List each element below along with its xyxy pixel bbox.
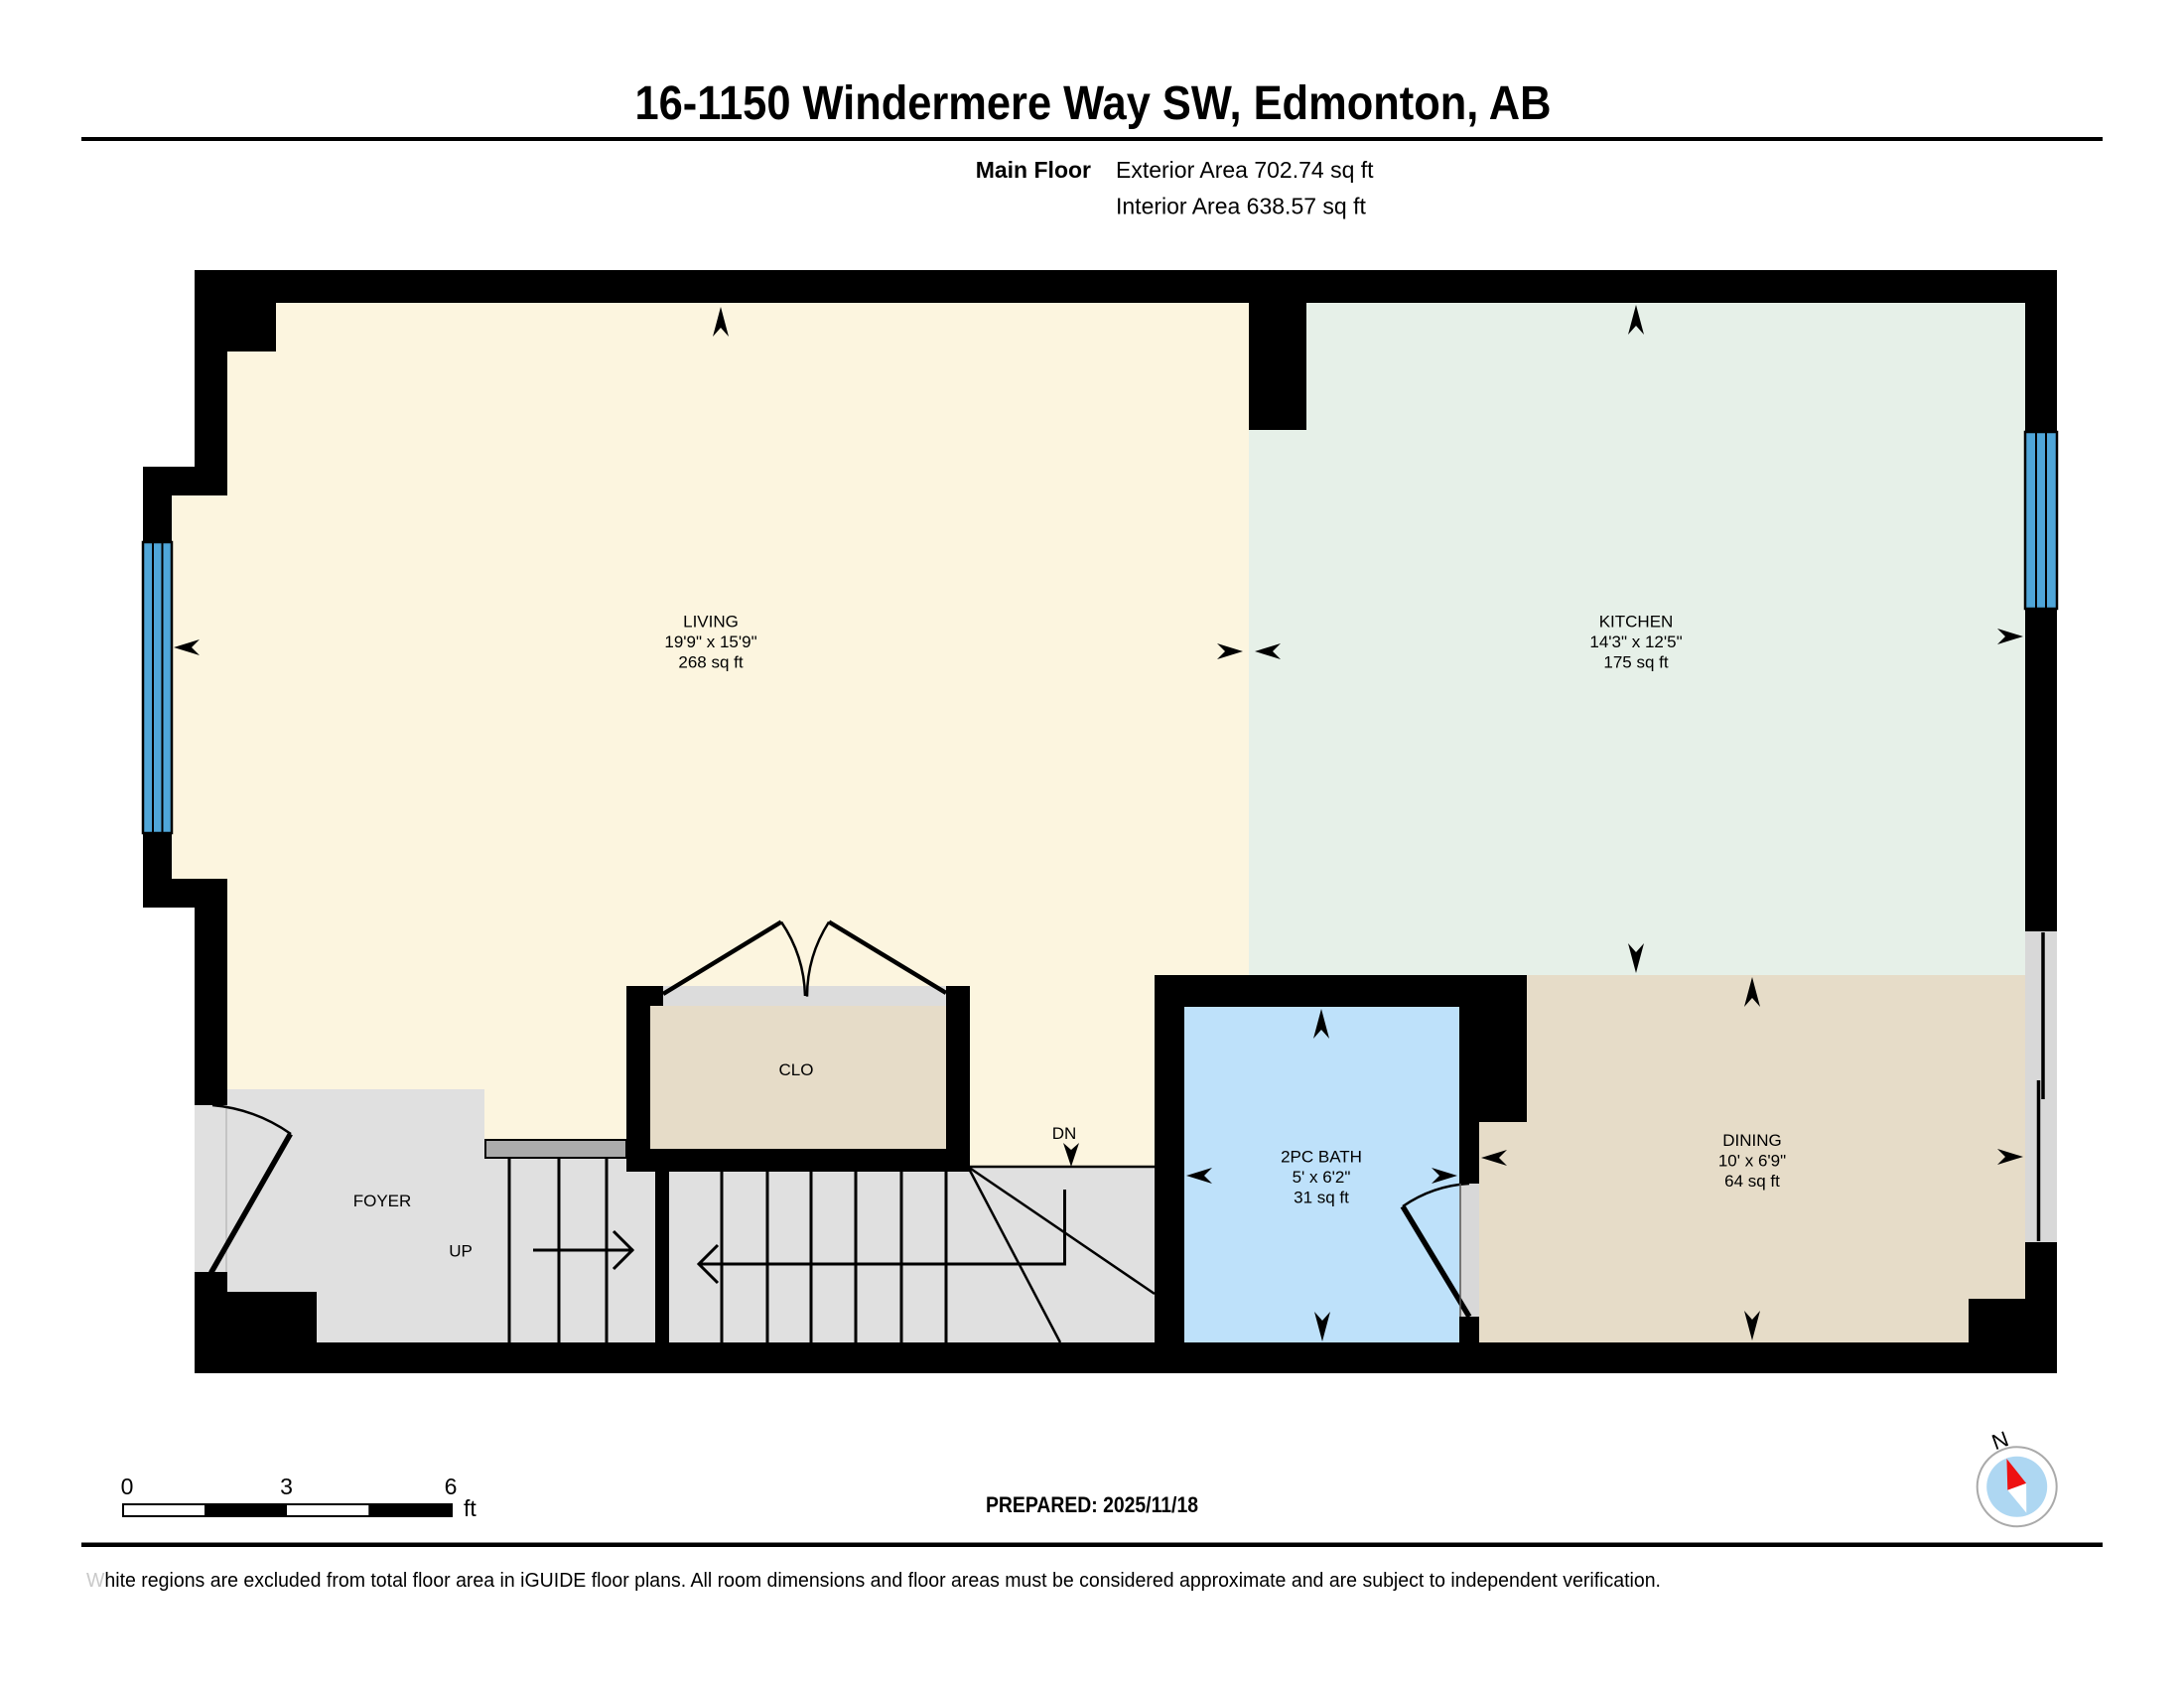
- svg-text:0: 0: [121, 1474, 134, 1499]
- svg-text:10' x 6'9": 10' x 6'9": [1718, 1152, 1786, 1171]
- svg-text:268 sq ft: 268 sq ft: [678, 653, 743, 672]
- svg-text:ft: ft: [464, 1495, 477, 1521]
- svg-text:White regions are excluded fro: White regions are excluded from total fl…: [86, 1570, 1661, 1592]
- svg-text:19'9" x 15'9": 19'9" x 15'9": [664, 633, 756, 651]
- svg-text:6: 6: [445, 1474, 458, 1499]
- svg-text:DN: DN: [1052, 1124, 1077, 1143]
- svg-text:KITCHEN: KITCHEN: [1599, 613, 1674, 632]
- svg-text:64 sq ft: 64 sq ft: [1724, 1172, 1780, 1191]
- svg-text:Main Floor: Main Floor: [976, 157, 1091, 183]
- svg-text:PREPARED: 2025/11/18: PREPARED: 2025/11/18: [986, 1492, 1198, 1517]
- svg-text:175 sq ft: 175 sq ft: [1603, 653, 1668, 672]
- svg-text:3: 3: [280, 1474, 293, 1499]
- svg-text:N: N: [1988, 1426, 2011, 1455]
- svg-text:2PC BATH: 2PC BATH: [1281, 1148, 1362, 1167]
- svg-text:31 sq ft: 31 sq ft: [1294, 1189, 1349, 1207]
- svg-text:5' x 6'2": 5' x 6'2": [1293, 1168, 1351, 1187]
- svg-text:14'3" x 12'5": 14'3" x 12'5": [1589, 633, 1682, 651]
- svg-text:FOYER: FOYER: [353, 1192, 412, 1210]
- svg-text:DINING: DINING: [1722, 1131, 1782, 1150]
- svg-text:Interior Area 638.57 sq ft: Interior Area 638.57 sq ft: [1116, 194, 1366, 219]
- svg-text:Exterior Area 702.74 sq ft: Exterior Area 702.74 sq ft: [1116, 157, 1374, 183]
- svg-text:CLO: CLO: [779, 1060, 814, 1079]
- svg-text:UP: UP: [449, 1242, 473, 1261]
- svg-text:16-1150 Windermere Way SW, Edm: 16-1150 Windermere Way SW, Edmonton, AB: [635, 77, 1552, 130]
- svg-text:LIVING: LIVING: [683, 613, 739, 632]
